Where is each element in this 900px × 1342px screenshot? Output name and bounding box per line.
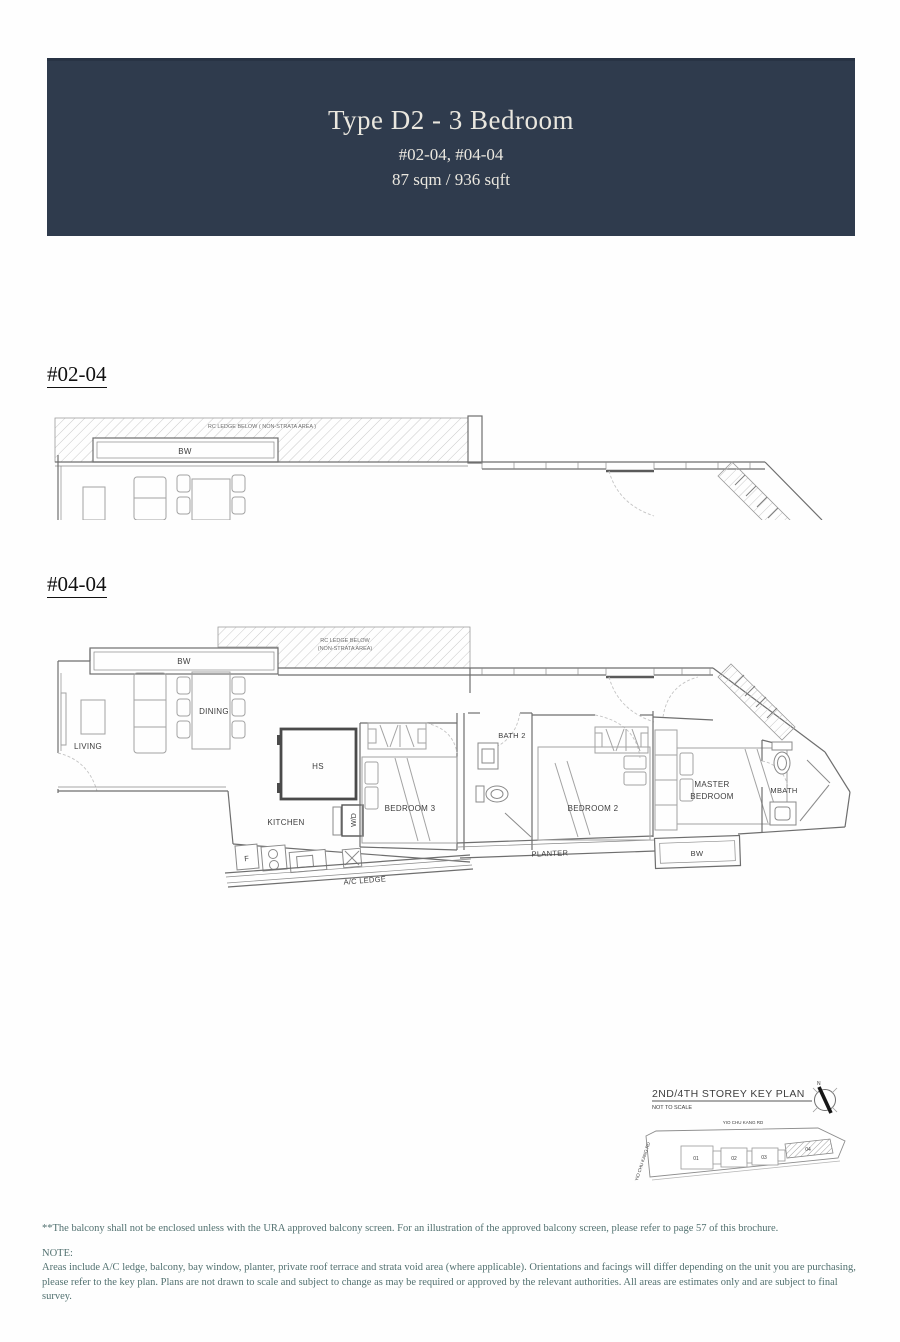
section-label-04-04: #04-04 <box>47 572 107 597</box>
key-unit-02: 02 <box>731 1156 737 1162</box>
note-label: NOTE: <box>42 1247 73 1261</box>
key-unit-04: 04 <box>805 1147 811 1153</box>
room-label-bedroom3: BEDROOM 3 <box>385 804 436 813</box>
room-label-kitchen: KITCHEN <box>267 818 304 827</box>
planter-strip: PLANTER <box>360 836 655 859</box>
kitchen: KITCHEN F W/D <box>235 805 363 873</box>
bay-window: BW <box>93 438 278 462</box>
room-label-living: LIVING <box>74 742 102 751</box>
north-label: N <box>817 1081 821 1087</box>
bedroom-2: BEDROOM 2 <box>532 711 653 840</box>
bw-bottom-label: BW <box>691 849 704 858</box>
bay-window-top: BW <box>90 648 278 674</box>
bw-top-label: BW <box>177 657 191 666</box>
household-shelter: HS <box>277 729 356 799</box>
key-plan-title: 2ND/4TH STOREY KEY PLAN <box>652 1088 805 1100</box>
bath-2: BATH 2 <box>468 713 532 850</box>
floorplan-02-04: BW RC LEDGE BELOW ( NON-STRATA AREA ) <box>50 413 860 520</box>
title-banner: Type D2 - 3 Bedroom #02-04, #04-04 87 sq… <box>47 58 855 236</box>
room-label-bath2: BATH 2 <box>498 731 526 740</box>
key-plan: 2ND/4TH STOREY KEY PLAN NOT TO SCALE N <box>630 1078 860 1190</box>
note-line-2: please refer to the key plan. Plans are … <box>42 1276 868 1304</box>
room-label-mbath: MBATH <box>770 786 797 795</box>
key-plan-scale-note: NOT TO SCALE <box>652 1105 692 1111</box>
washer-dryer-label: W/D <box>351 813 358 827</box>
room-label-dining: DINING <box>199 707 229 716</box>
room-label-hs: HS <box>312 762 324 771</box>
road-label-top: YIO CHU KANG RD <box>723 1120 764 1125</box>
planter-label: PLANTER <box>531 848 568 858</box>
key-unit-03: 03 <box>761 1155 767 1161</box>
key-unit-01: 01 <box>693 1156 699 1162</box>
page-title: Type D2 - 3 Bedroom <box>47 105 855 136</box>
site-outline: 01 02 03 04 YIO CHU KANG RD YIO CHU KANG… <box>634 1120 845 1182</box>
master-bath: MBATH <box>762 740 830 833</box>
rc-ledge-label-1: RC LEDGE BELOW <box>320 638 370 644</box>
entry-wardrobe-hatch <box>718 462 798 520</box>
rc-ledge-label: RC LEDGE BELOW ( NON-STRATA AREA ) <box>208 424 316 430</box>
floorplan-04-04: RC LEDGE BELOW (NON-STRATA AREA) <box>50 615 860 915</box>
balcony-note: **The balcony shall not be enclosed unle… <box>42 1222 862 1236</box>
bedroom-3: BEDROOM 3 <box>360 713 464 850</box>
room-label-master-1: MASTER <box>694 780 729 789</box>
north-compass: N <box>813 1081 837 1113</box>
note-line-1: Areas include A/C ledge, balcony, bay wi… <box>42 1261 868 1275</box>
room-label-bedroom2: BEDROOM 2 <box>568 804 619 813</box>
entry-wardrobe-hatch <box>718 664 795 740</box>
fridge-label: F <box>244 854 250 863</box>
bw-label: BW <box>178 447 192 456</box>
unit-numbers: #02-04, #04-04 <box>47 145 855 165</box>
ac-ledge-label: A/C LEDGE <box>343 874 386 886</box>
unit-area: 87 sqm / 936 sqft <box>47 170 855 190</box>
section-label-02-04: #02-04 <box>47 362 107 387</box>
room-label-master-2: BEDROOM <box>690 792 733 801</box>
bay-window-bottom: BW <box>655 836 741 869</box>
rc-ledge-label-2: (NON-STRATA AREA) <box>318 646 373 652</box>
furniture-partial <box>83 475 245 520</box>
brochure-page: Type D2 - 3 Bedroom #02-04, #04-04 87 sq… <box>0 0 900 1342</box>
